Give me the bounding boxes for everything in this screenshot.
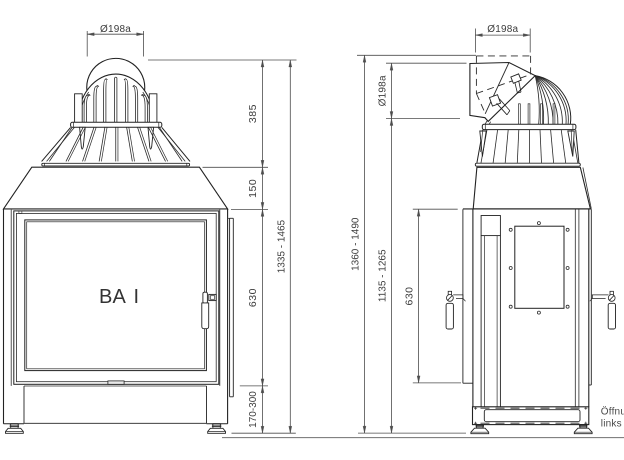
svg-text:630: 630	[404, 286, 416, 305]
svg-text:630: 630	[247, 288, 259, 307]
svg-text:1360 - 1490: 1360 - 1490	[350, 217, 361, 271]
svg-text:A: A	[113, 286, 127, 308]
svg-text:150: 150	[247, 179, 259, 198]
svg-text:Ø198a: Ø198a	[487, 24, 518, 35]
svg-text:1335 - 1465: 1335 - 1465	[277, 219, 288, 273]
svg-text:links oder: links oder	[601, 419, 624, 430]
svg-text:Öffnung w: Öffnung w	[601, 406, 624, 418]
svg-text:B: B	[99, 286, 112, 308]
svg-text:Ø198a: Ø198a	[377, 75, 388, 106]
svg-text:1135 - 1265: 1135 - 1265	[377, 249, 388, 302]
svg-text:385: 385	[247, 104, 259, 123]
svg-text:Ø198a: Ø198a	[100, 24, 131, 35]
svg-text:I: I	[134, 286, 140, 308]
svg-text:170-300: 170-300	[248, 391, 259, 428]
